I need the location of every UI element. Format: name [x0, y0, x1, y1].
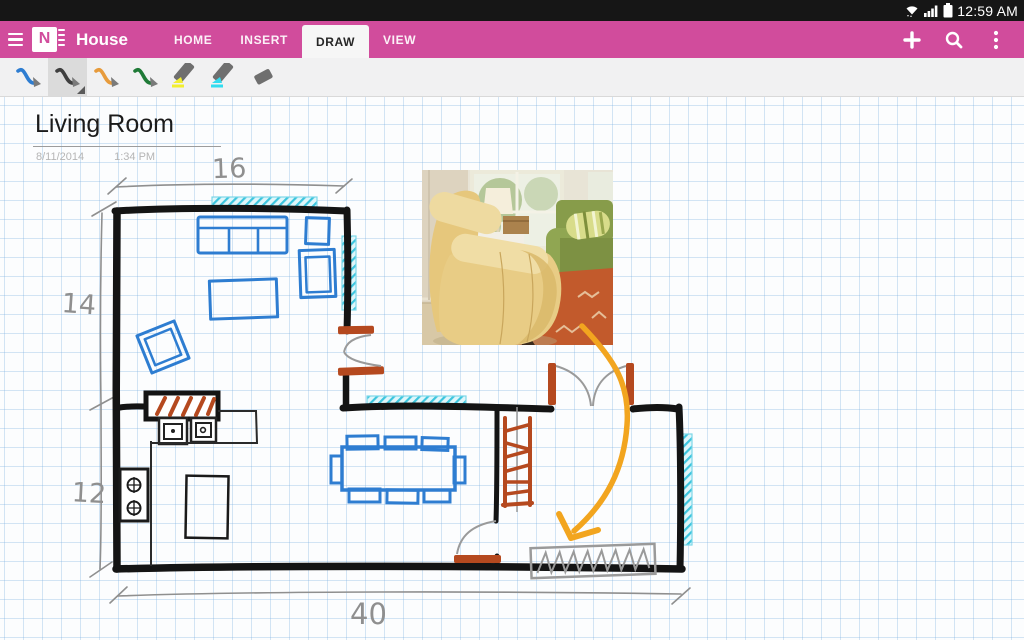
signal-icon	[924, 4, 939, 18]
notebook-title[interactable]: House	[76, 30, 128, 50]
wifi-icon	[904, 3, 920, 18]
battery-icon	[943, 3, 953, 18]
highlighter-yellow-button[interactable]	[165, 58, 204, 96]
tab-home[interactable]: HOME	[160, 21, 226, 58]
tab-insert[interactable]: INSERT	[226, 21, 302, 58]
highlighter-cyan-button[interactable]	[204, 58, 243, 96]
eraser-button[interactable]	[243, 58, 282, 96]
app-bar: N House HOME INSERT DRAW VIEW	[0, 21, 1024, 58]
pen-orange-button[interactable]	[87, 58, 126, 96]
drawing-canvas[interactable]	[0, 97, 1024, 640]
page-title[interactable]: Living Room	[33, 110, 221, 147]
app-bar-actions	[898, 26, 1024, 54]
page-time: 1:34 PM	[114, 151, 155, 163]
hamburger-menu-icon[interactable]	[0, 21, 30, 58]
pen-blue-button[interactable]	[9, 58, 48, 96]
clock: 12:59 AM	[957, 3, 1018, 19]
page-meta: 8/11/2014 1:34 PM	[33, 151, 221, 163]
page-date: 8/11/2014	[36, 151, 84, 163]
page-header: Living Room 8/11/2014 1:34 PM	[33, 110, 221, 163]
onenote-app: Living Room 8/11/2014 1:34 PM 16 14 12	[0, 0, 1024, 640]
pen-black-button[interactable]	[48, 58, 87, 96]
status-bar: 12:59 AM	[0, 0, 1024, 21]
ribbon-tabs: HOME INSERT DRAW VIEW	[160, 21, 430, 58]
overflow-menu-icon[interactable]	[982, 26, 1010, 54]
pen-green-button[interactable]	[126, 58, 165, 96]
pen-toolbar	[0, 58, 1024, 97]
add-page-icon[interactable]	[898, 26, 926, 54]
tab-view[interactable]: VIEW	[369, 21, 430, 58]
tab-draw[interactable]: DRAW	[302, 25, 369, 58]
search-icon[interactable]	[940, 26, 968, 54]
onenote-logo-icon: N	[32, 27, 66, 53]
